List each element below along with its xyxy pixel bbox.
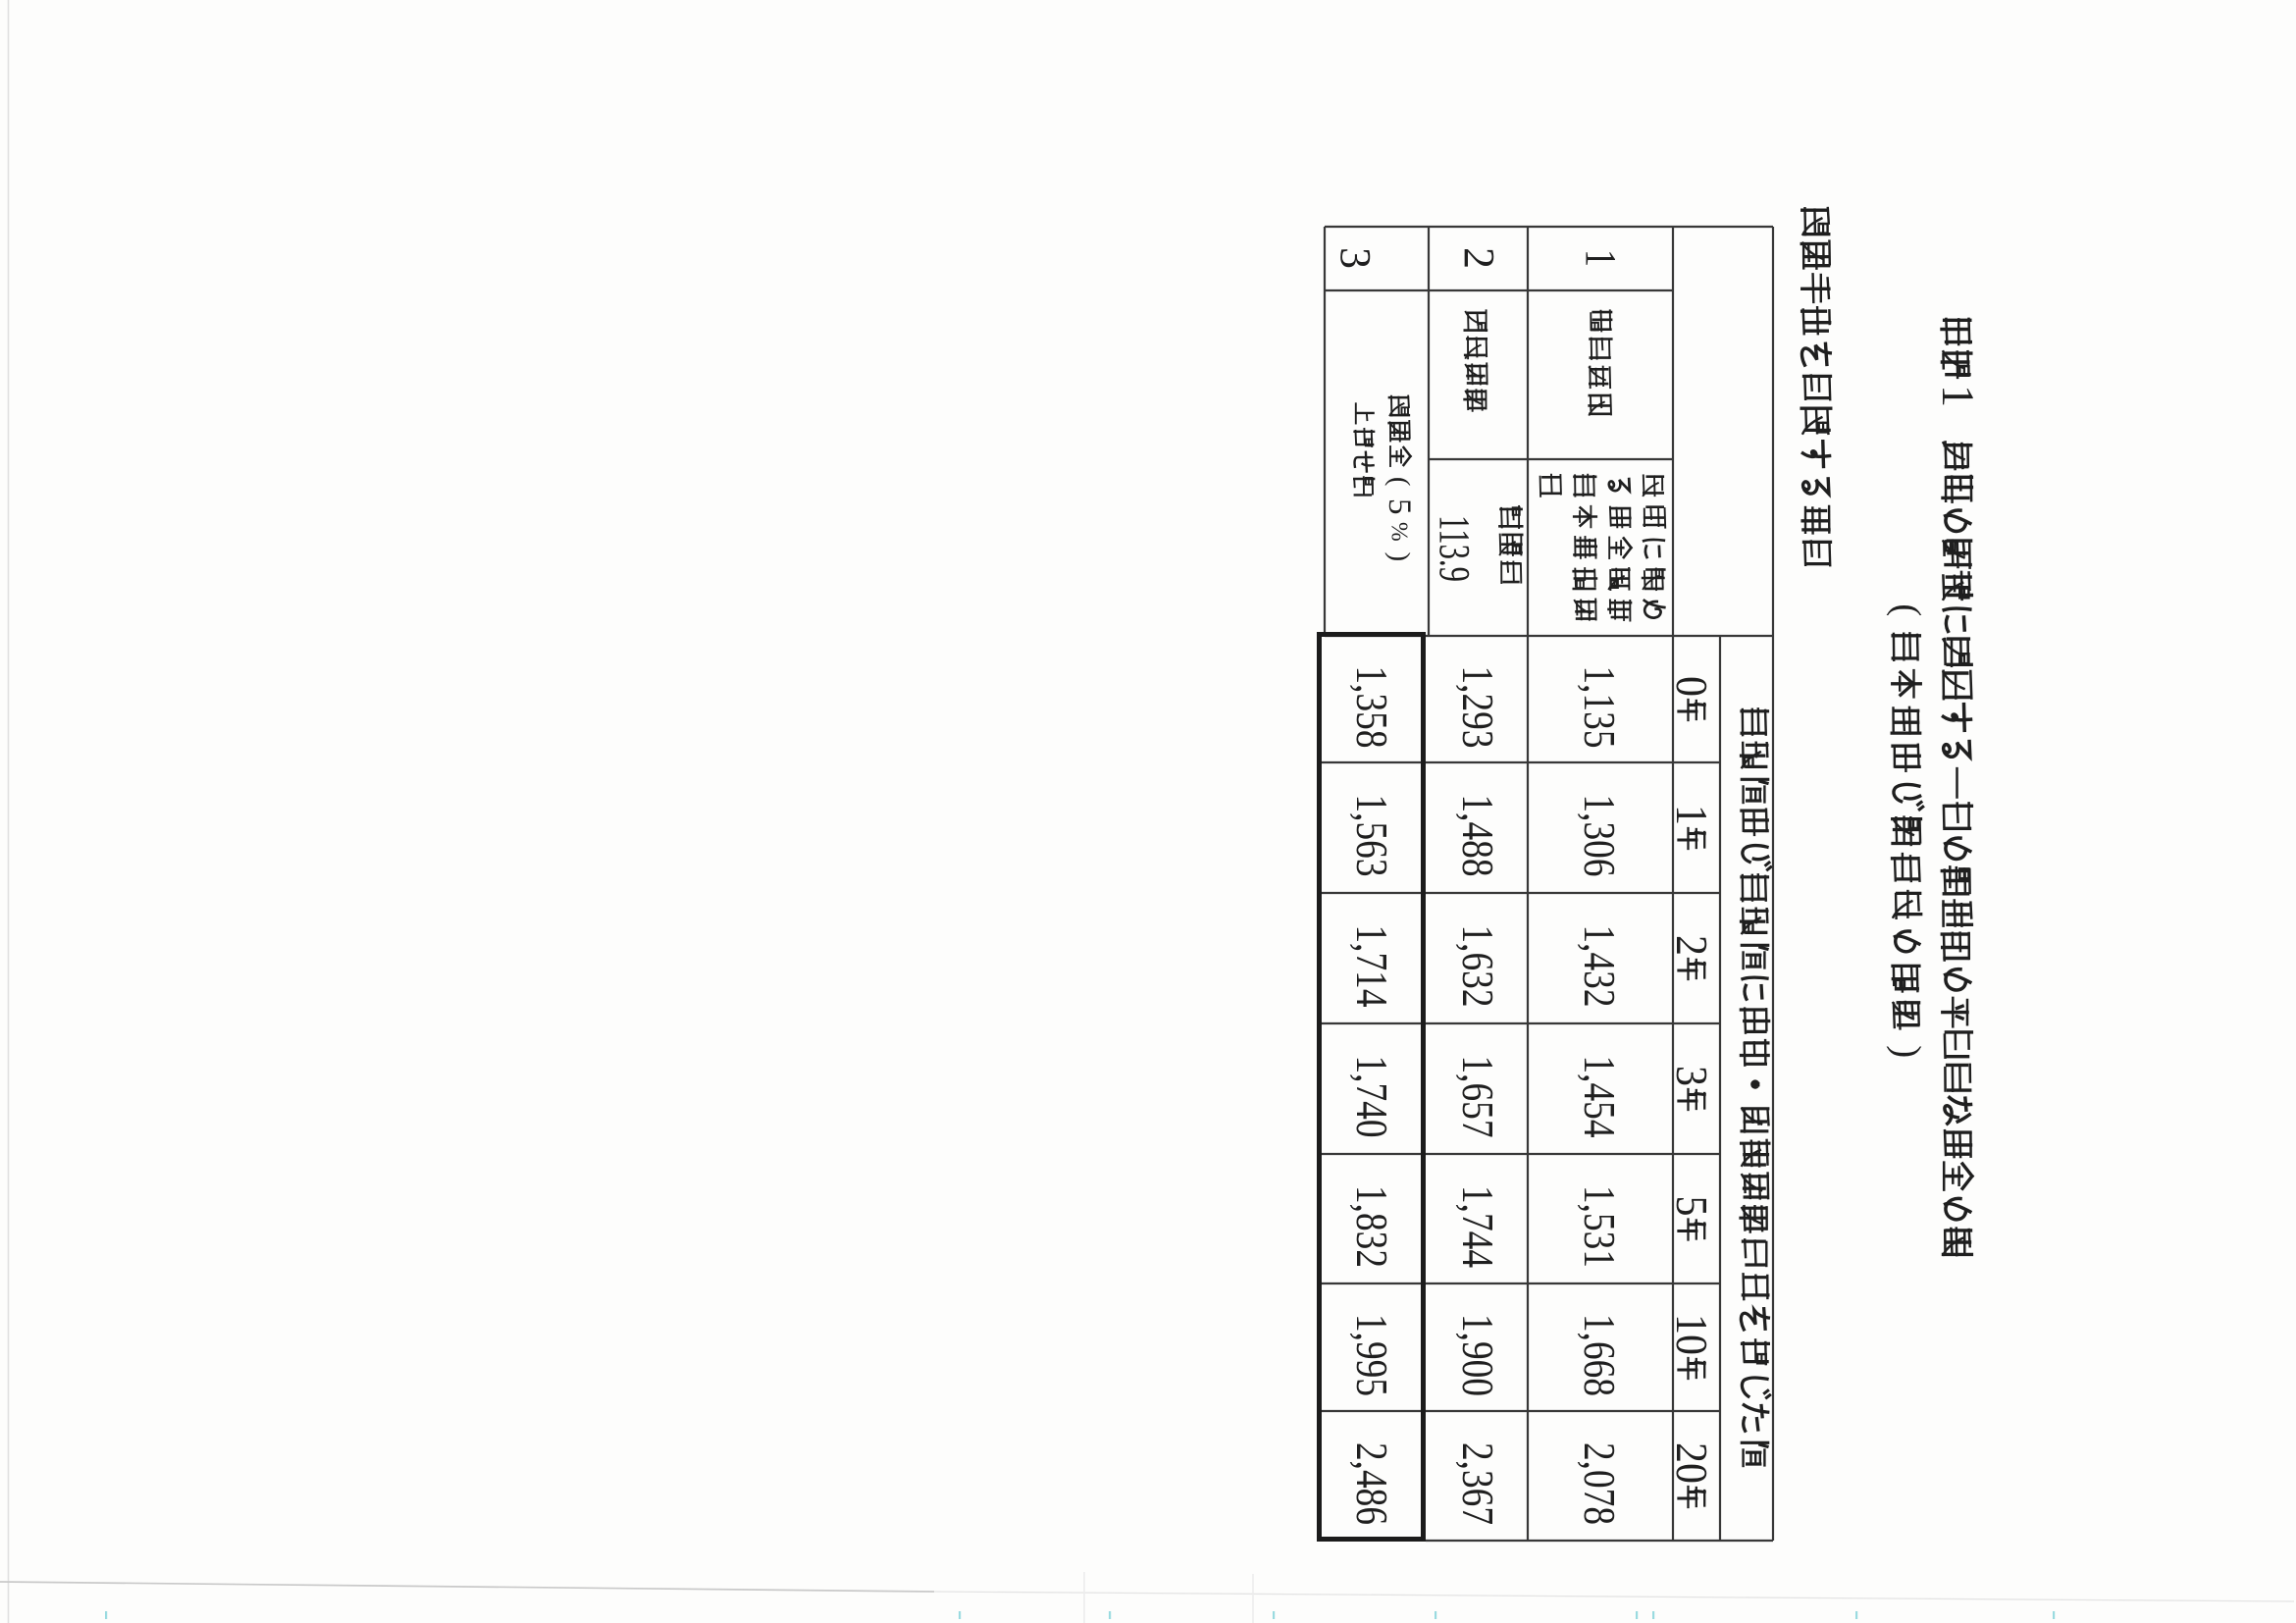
svg-text:1,632: 1,632 xyxy=(1453,925,1503,1008)
svg-text:): ) xyxy=(1384,552,1416,562)
svg-text:1: 1 xyxy=(1933,385,1983,407)
svg-text:1,488: 1,488 xyxy=(1453,795,1503,877)
svg-text:1,744: 1,744 xyxy=(1453,1185,1503,1268)
svg-text:5: 5 xyxy=(1382,498,1417,515)
svg-text:2,367: 2,367 xyxy=(1453,1442,1503,1525)
svg-text:2,486: 2,486 xyxy=(1347,1442,1397,1525)
svg-text:1,900: 1,900 xyxy=(1453,1314,1503,1396)
svg-text:1,454: 1,454 xyxy=(1575,1056,1625,1138)
svg-text:2: 2 xyxy=(1455,247,1503,269)
svg-text:1,657: 1,657 xyxy=(1453,1056,1503,1138)
svg-text:1,668: 1,668 xyxy=(1575,1314,1625,1396)
svg-text:1,714: 1,714 xyxy=(1347,925,1397,1008)
svg-text:1,740: 1,740 xyxy=(1347,1056,1397,1138)
svg-text:1: 1 xyxy=(1667,805,1717,825)
svg-text:1,432: 1,432 xyxy=(1575,925,1625,1008)
svg-text:5: 5 xyxy=(1667,1196,1717,1217)
svg-text:(: ( xyxy=(1886,603,1928,616)
svg-text:113.9: 113.9 xyxy=(1431,515,1479,582)
svg-text:1,293: 1,293 xyxy=(1453,666,1503,749)
svg-text:1,135: 1,135 xyxy=(1575,666,1625,749)
svg-text:1,995: 1,995 xyxy=(1347,1314,1397,1396)
svg-text:1,531: 1,531 xyxy=(1575,1185,1625,1268)
svg-text:3: 3 xyxy=(1667,1066,1717,1086)
svg-text:1: 1 xyxy=(1577,249,1625,267)
svg-text:(: ( xyxy=(1384,477,1416,487)
svg-text:): ) xyxy=(1886,1045,1928,1058)
svg-text:2,078: 2,078 xyxy=(1575,1442,1625,1525)
svg-text:1,358: 1,358 xyxy=(1347,666,1397,749)
svg-text:20: 20 xyxy=(1667,1442,1717,1484)
svg-text:0: 0 xyxy=(1667,676,1717,697)
svg-text:3: 3 xyxy=(1331,247,1380,269)
svg-text:%: % xyxy=(1386,522,1412,542)
svg-text:10: 10 xyxy=(1667,1314,1717,1355)
svg-text:1,306: 1,306 xyxy=(1575,795,1625,877)
svg-text:1,832: 1,832 xyxy=(1347,1185,1397,1268)
svg-text:1,563: 1,563 xyxy=(1347,795,1397,877)
svg-text:2: 2 xyxy=(1667,935,1717,956)
